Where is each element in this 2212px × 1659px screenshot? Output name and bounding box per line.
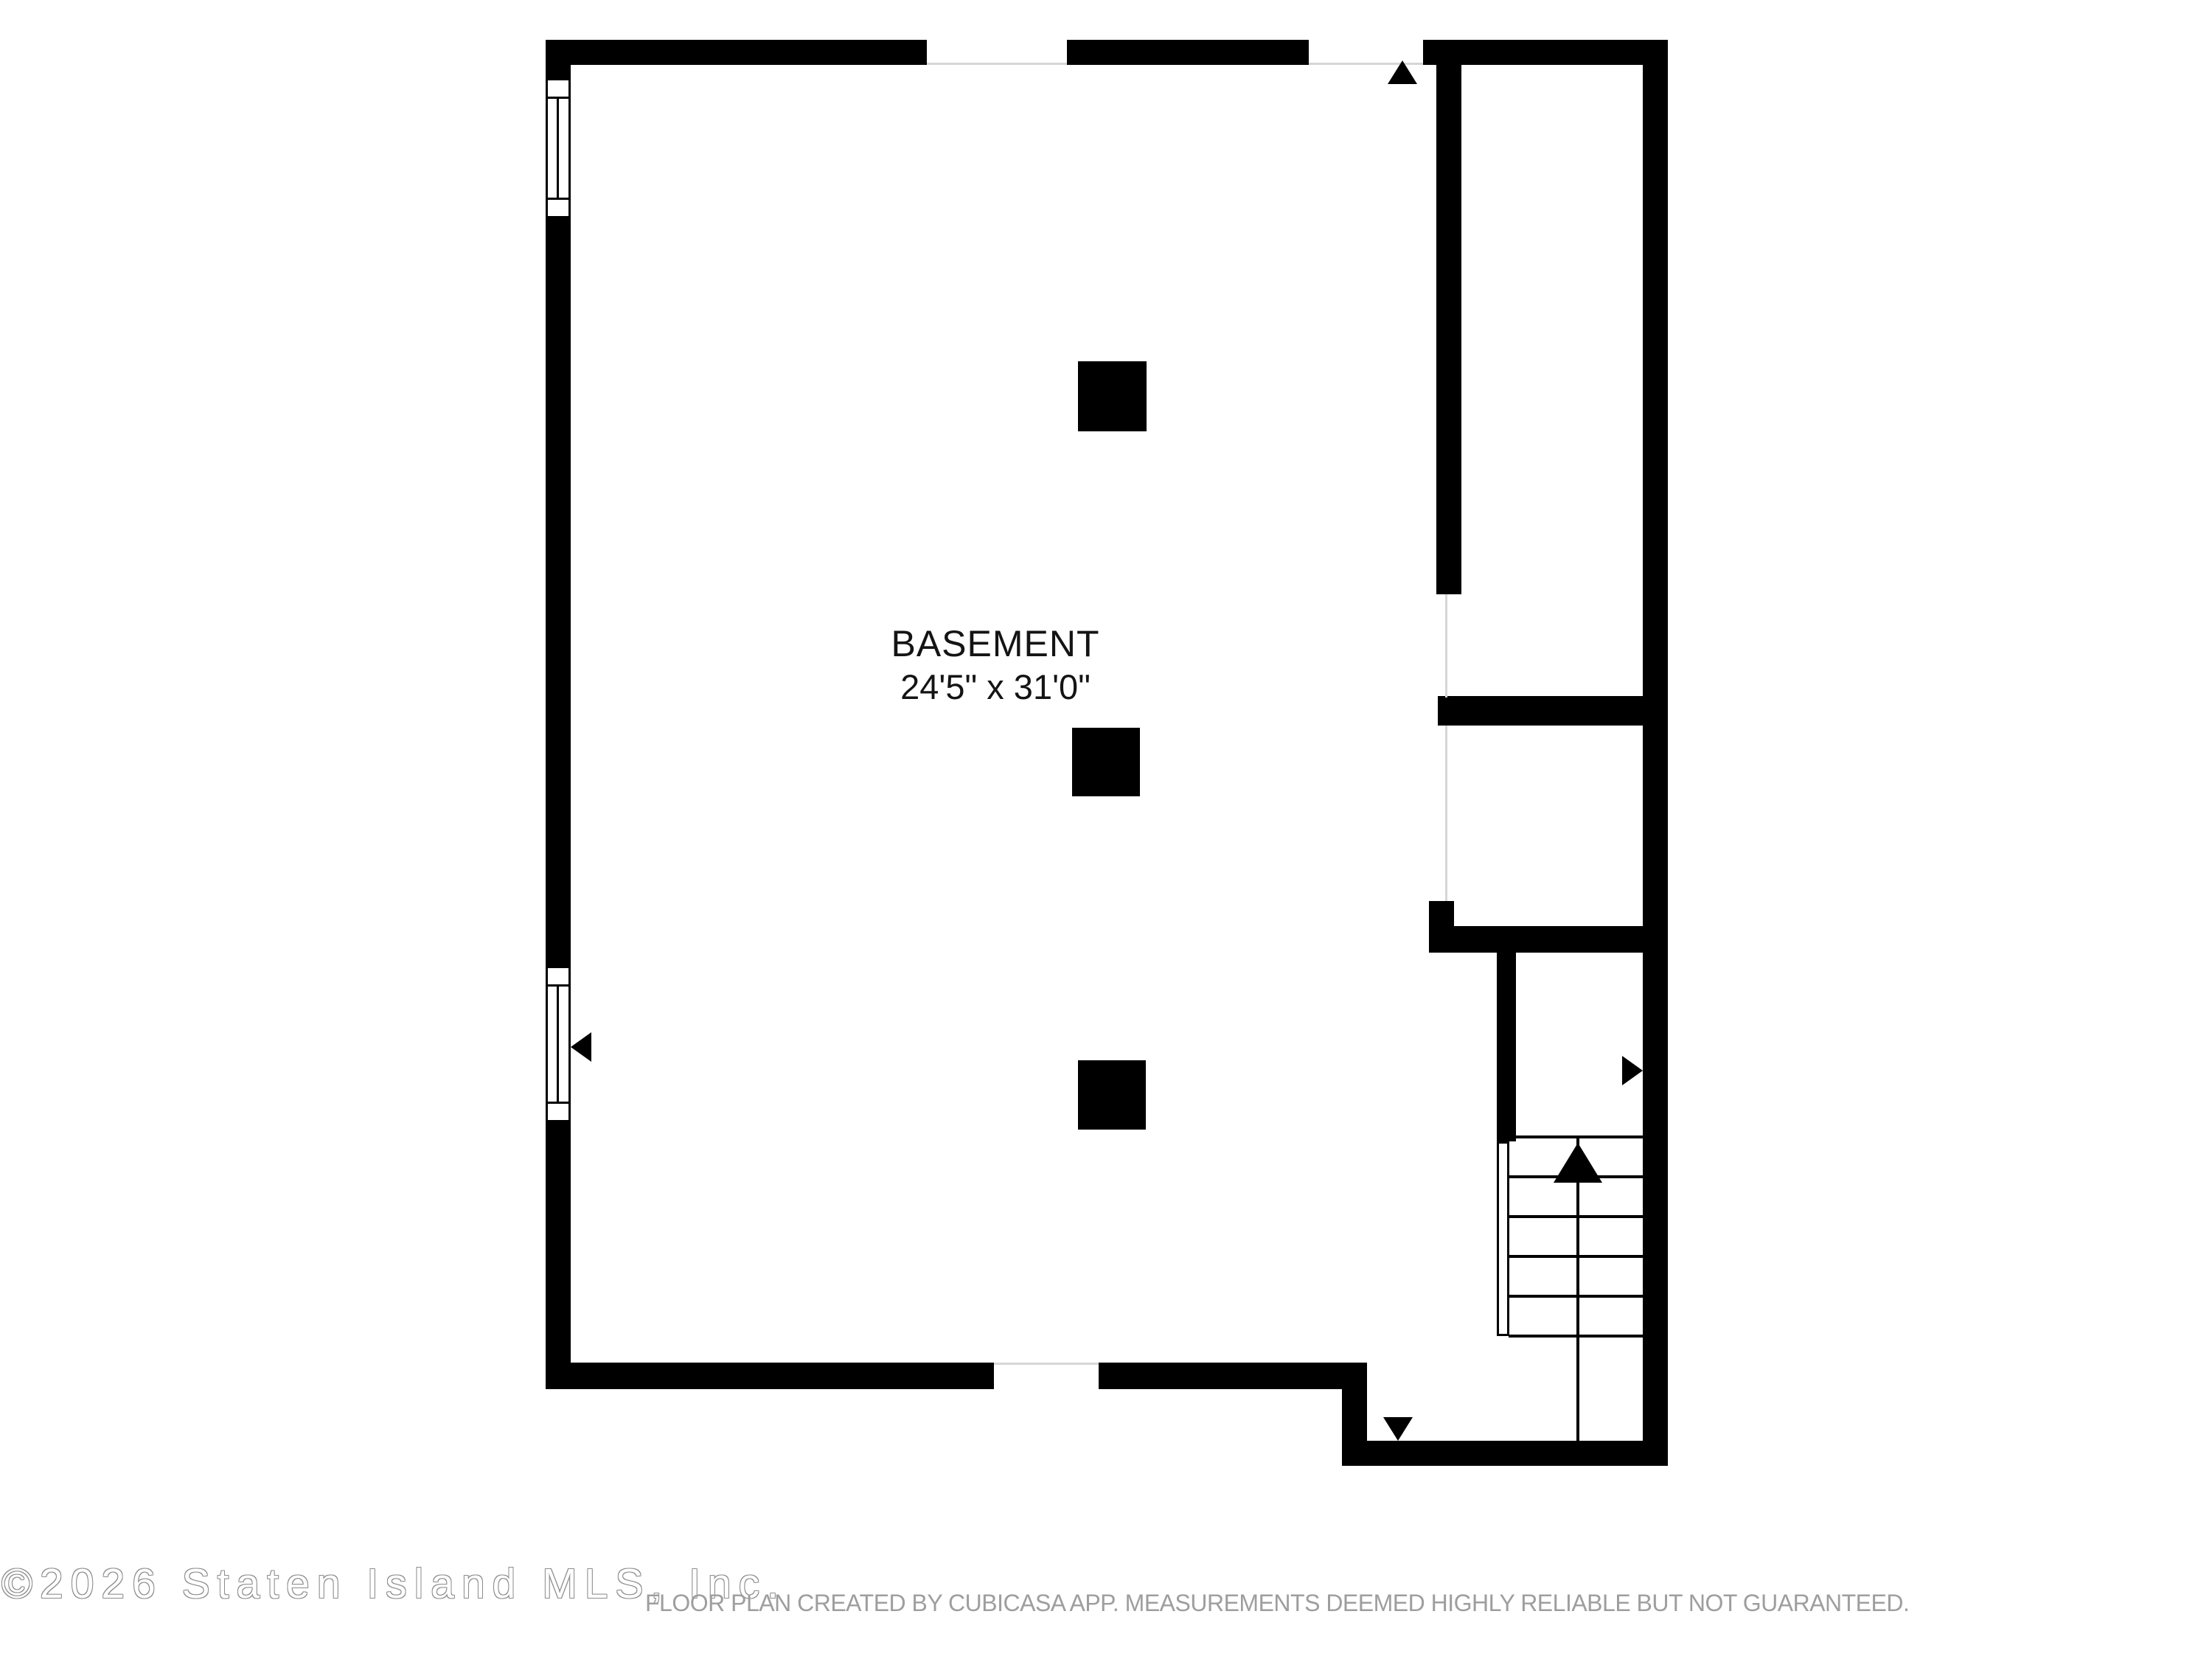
bottom-wall-lower xyxy=(1342,1441,1668,1466)
bottom-wall-segment-right xyxy=(1099,1363,1367,1389)
left-wall-segment-middle xyxy=(546,218,571,966)
stair-tread-line xyxy=(1509,1135,1643,1138)
middle-room-open-side-line xyxy=(1445,726,1447,901)
interior-wall-horizontal-upper xyxy=(1438,696,1643,726)
room-name-label: BASEMENT xyxy=(774,624,1217,664)
stair-tread-line xyxy=(1509,1255,1643,1258)
entry-arrow-down-icon xyxy=(1383,1417,1413,1441)
right-wall xyxy=(1643,40,1668,1466)
stair-handrail xyxy=(1497,1141,1509,1336)
entry-arrow-right-icon xyxy=(1622,1056,1643,1085)
disclaimer-text: FLOOR PLAN CREATED BY CUBICASA APP. MEAS… xyxy=(645,1590,1909,1616)
stair-enclosure-wall xyxy=(1497,953,1516,1141)
stair-tread-line xyxy=(1509,1295,1643,1298)
stair-tread-line xyxy=(1509,1215,1643,1218)
top-wall-segment-left xyxy=(546,40,927,65)
entry-arrow-up-icon xyxy=(1388,60,1417,84)
top-opening-left-sill-line xyxy=(927,63,1067,65)
support-column-middle xyxy=(1072,728,1140,796)
support-column-top xyxy=(1078,361,1147,431)
top-wall-segment-right xyxy=(1423,40,1668,65)
left-wall-lower-window xyxy=(546,966,571,1122)
interior-wall-vertical-upper xyxy=(1436,65,1461,594)
window-pane-line xyxy=(557,986,559,1102)
bottom-wall-segment-left xyxy=(546,1363,994,1389)
window-pane-line xyxy=(557,98,559,198)
stairs-up-arrow-icon xyxy=(1554,1143,1602,1183)
room-dimensions-label: 24'5" x 31'0" xyxy=(774,668,1217,706)
left-wall-upper-window xyxy=(546,78,571,218)
interior-wall-stub xyxy=(1429,901,1454,926)
stair-tread-line xyxy=(1509,1335,1643,1338)
floor-plan-page: BASEMENT 24'5" x 31'0" ©2026 Staten Isla… xyxy=(0,0,2212,1659)
support-column-bottom xyxy=(1078,1060,1146,1130)
top-wall-segment-middle xyxy=(1067,40,1309,65)
left-wall-segment-top xyxy=(546,40,571,78)
entry-arrow-left-icon xyxy=(571,1032,591,1062)
interior-wall-horizontal-lower xyxy=(1429,926,1668,953)
bottom-opening-sill-line xyxy=(994,1363,1099,1365)
left-wall-segment-bottom xyxy=(546,1122,571,1366)
interior-doorway-line xyxy=(1445,594,1447,698)
